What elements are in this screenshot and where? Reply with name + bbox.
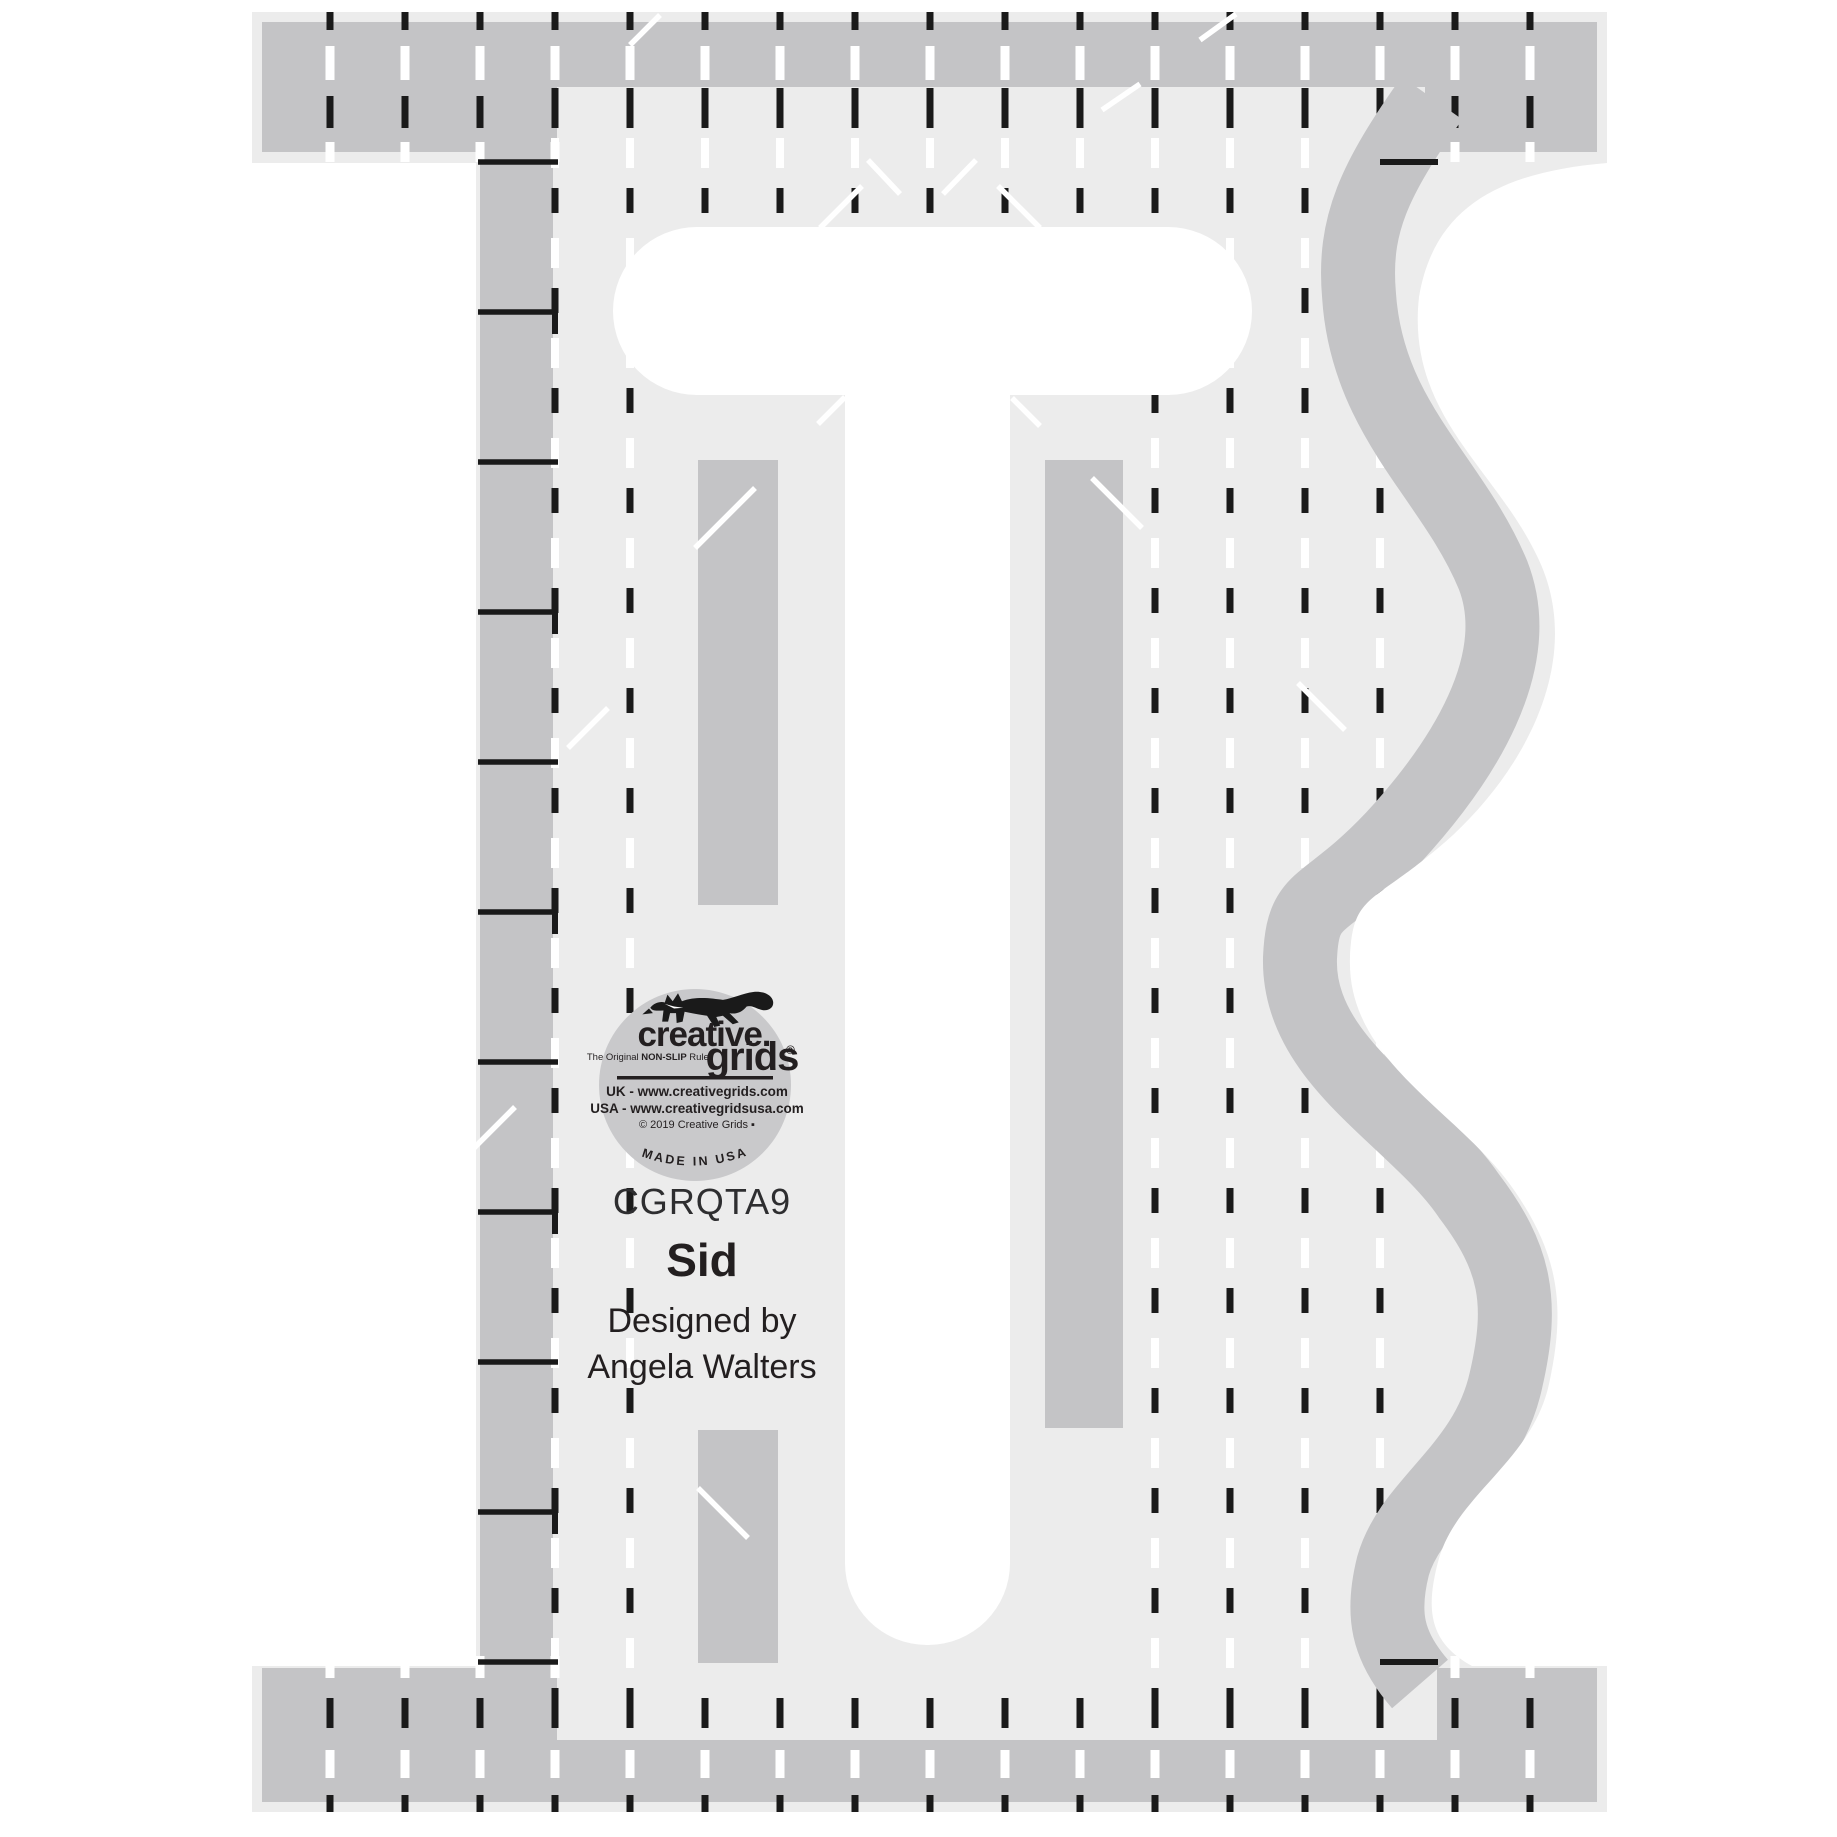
registered-mark-icon: ®	[786, 1043, 795, 1057]
bottom-right-block	[1437, 1668, 1597, 1802]
product-code: CGRQTA9	[613, 1181, 791, 1222]
inner-rect-right	[1045, 460, 1123, 1428]
logo-url-usa: USA - www.creativegridsusa.com	[590, 1101, 804, 1116]
product-byline-1: Designed by	[607, 1302, 796, 1340]
logo-tagline: The Original NON-SLIP Ruler	[587, 1052, 712, 1063]
inner-rect-lower-left	[698, 1430, 778, 1663]
t-slot-vertical	[845, 310, 1010, 1645]
top-left-block	[262, 22, 557, 152]
product-name: Sid	[666, 1234, 738, 1286]
bottom-left-block	[262, 1668, 557, 1802]
logo-brand-line2: grids	[706, 1035, 799, 1079]
quilting-ruler-image: creative. The Original NON-SLIP Ruler gr…	[0, 0, 1837, 1837]
inner-rect-upper-left	[698, 460, 778, 905]
product-photo: creative. The Original NON-SLIP Ruler gr…	[0, 0, 1837, 1837]
logo-copyright: © 2019 Creative Grids ▪	[639, 1119, 755, 1131]
logo-divider	[617, 1076, 773, 1080]
logo-url-uk: UK - www.creativegrids.com	[606, 1084, 788, 1099]
product-byline-2: Angela Walters	[587, 1348, 816, 1386]
